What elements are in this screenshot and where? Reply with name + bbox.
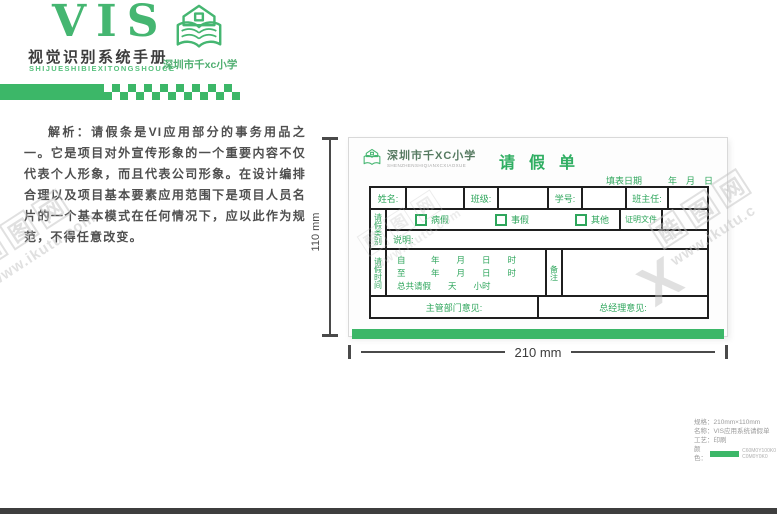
height-dimension-line	[322, 137, 340, 337]
spec-color-label: 颜色：	[694, 445, 707, 463]
leave-time-to: 至 年 月 日 时	[397, 267, 516, 280]
name-field	[407, 188, 465, 208]
vis-logo-text: VIS	[52, 0, 169, 47]
class-label: 班级:	[465, 188, 499, 208]
table-row-leave-time: 请假时间 自 年 月 日 时 至 年 月 日 时 总共请假 天 小时 备注	[371, 250, 707, 297]
head-teacher-label: 班主任:	[627, 188, 669, 208]
leave-type-options-row: 病假 事假 其他 证明文件	[387, 210, 707, 231]
leave-time-total: 总共请假 天 小时	[397, 280, 491, 293]
leave-time-from: 自 年 月 日 时	[397, 254, 516, 267]
cmyk-value: C0M0Y0K0	[742, 454, 776, 460]
spec-size: 规格：210mm×110mm	[694, 418, 776, 427]
dept-opinion-label: 主管部门意见:	[371, 297, 539, 317]
dimension-cap	[348, 345, 351, 359]
footer-bar	[0, 508, 777, 514]
form-school-name: 深圳市千XC小学	[387, 147, 476, 163]
spec-name: 名称：VIS应用系统请假单	[694, 427, 776, 436]
width-dimension-label: 210 mm	[515, 345, 562, 360]
checkbox-icon	[495, 214, 507, 226]
dimension-line	[329, 137, 331, 337]
table-row-leave-type: 请假类别 病假 事假	[371, 210, 707, 250]
checkbox-other-leave: 其他	[575, 213, 609, 226]
checkbox-icon	[575, 214, 587, 226]
leave-form-table: 姓名: 班级: 学号: 班主任: 请假类别 病假	[369, 186, 709, 319]
proof-document-field	[661, 210, 707, 229]
form-school-logo-icon	[361, 148, 383, 168]
head-teacher-field	[669, 188, 707, 208]
dimension-cap	[725, 345, 728, 359]
checkbox-label: 事假	[511, 213, 529, 226]
brand-bar-checker-pattern	[104, 84, 240, 100]
leave-form-card: 深圳市千XC小学 SHENZHENSHIQIANXCXIAOXUE 请假单 填表…	[348, 137, 728, 337]
checkbox-label: 病假	[431, 213, 449, 226]
leave-time-section-label: 请假时间	[371, 250, 387, 295]
class-field	[499, 188, 549, 208]
spec-caption: 规格：210mm×110mm 名称：VIS应用系统请假单 工艺：印刷 颜色： C…	[694, 418, 776, 463]
note-label: 说明:	[393, 233, 414, 246]
width-dimension-line: 210 mm	[348, 344, 728, 360]
student-number-field	[583, 188, 627, 208]
leave-time-fields: 自 年 月 日 时 至 年 月 日 时 总共请假 天 小时	[387, 250, 547, 295]
remark-field	[563, 250, 707, 295]
proof-document-label: 证明文件	[619, 210, 661, 229]
page-canvas: VIS 视觉识别系统手册 SHIJUESHIBIEXITONGSHOUCE 深圳…	[0, 0, 777, 514]
form-logo: 深圳市千XC小学 SHENZHENSHIQIANXCXIAOXUE	[361, 147, 476, 168]
dimension-cap	[322, 334, 338, 337]
table-row-identity: 姓名: 班级: 学号: 班主任:	[371, 188, 707, 210]
dimension-line	[571, 351, 715, 353]
watermark-char: 酷	[0, 229, 9, 270]
manager-opinion-label: 总经理意见:	[539, 297, 707, 317]
school-name: 深圳市千xc小学	[146, 57, 254, 72]
checkbox-label: 其他	[591, 213, 609, 226]
form-school-name-pinyin: SHENZHENSHIQIANXCXIAOXUE	[387, 163, 476, 168]
remark-label: 备注	[547, 250, 563, 295]
height-dimension-label: 110 mm	[310, 202, 322, 262]
school-logo-icon	[170, 2, 228, 56]
name-label: 姓名:	[371, 188, 407, 208]
form-bottom-brand-bar	[352, 329, 724, 339]
spec-craft: 工艺：印刷	[694, 436, 776, 445]
leave-type-section-label: 请假类别	[371, 210, 387, 248]
checkbox-sick-leave: 病假	[415, 213, 449, 226]
dimension-line	[361, 351, 505, 353]
note-row: 说明:	[387, 231, 707, 248]
spec-color-row: 颜色： C60M0Y100K0 C0M0Y0K0	[694, 445, 776, 463]
checkbox-icon	[415, 214, 427, 226]
color-swatch	[710, 451, 739, 457]
table-row-opinions: 主管部门意见: 总经理意见:	[371, 297, 707, 317]
analysis-paragraph: 解析：请假条是VI应用部分的事务用品之一。它是项目对外宣传形象的一个重要内容不仅…	[24, 122, 306, 248]
checkbox-personal-leave: 事假	[495, 213, 529, 226]
student-number-label: 学号:	[549, 188, 583, 208]
form-title: 请假单	[499, 149, 589, 173]
